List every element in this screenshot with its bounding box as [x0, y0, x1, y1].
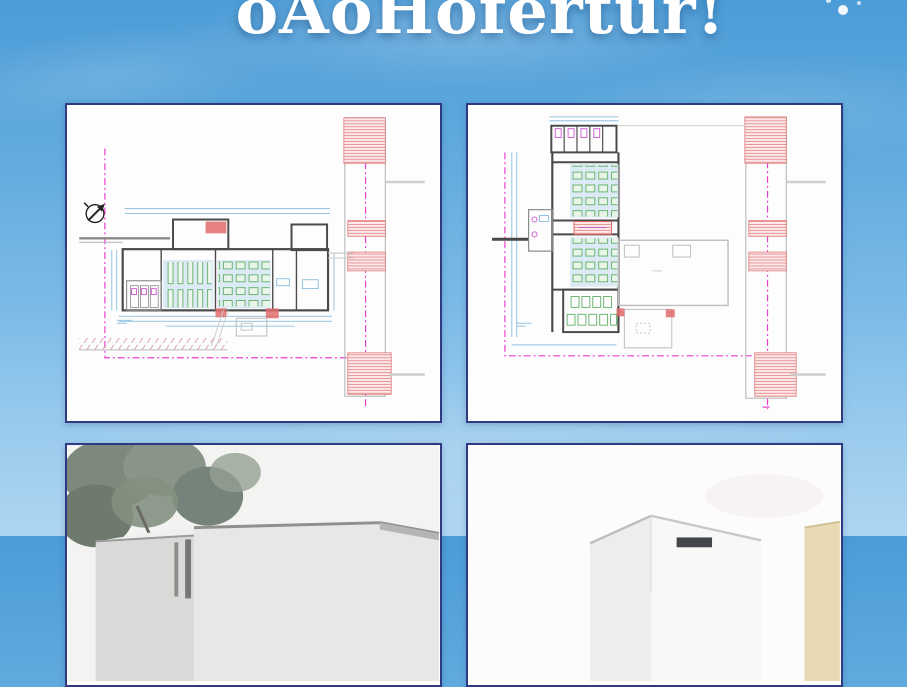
building-mass [96, 523, 439, 681]
building-render [468, 445, 841, 681]
service-rooms [529, 210, 553, 251]
stair-hatch [574, 222, 612, 235]
page-title: oAoHofertur! [235, 0, 725, 48]
site-boundary-line [505, 117, 773, 409]
toilet-block [551, 126, 616, 153]
white-speck [838, 5, 848, 15]
floor-plan-panel-right [466, 103, 843, 423]
north-arrow-icon [84, 203, 105, 223]
background-haze [705, 475, 823, 518]
office-furniture [277, 279, 318, 289]
plan-annotation [517, 323, 532, 326]
floor-plan-drawing [67, 105, 440, 417]
classroom-lower [570, 237, 618, 286]
toilet-stalls [127, 281, 162, 311]
classroom-right [217, 260, 270, 308]
parking-row [79, 338, 227, 350]
bottom-room [563, 290, 618, 332]
patio-outline [616, 308, 674, 347]
existing-building-hatch [344, 118, 425, 396]
render-panel-right [466, 443, 843, 687]
window-slit [677, 537, 712, 547]
beige-wall [804, 522, 839, 681]
white-speck [857, 1, 861, 5]
existing-footprint [618, 240, 728, 305]
floor-plan-drawing [468, 105, 841, 417]
render-panel-left [65, 443, 442, 687]
classroom-upper [570, 164, 618, 217]
floor-plan-panel-left [65, 103, 442, 423]
white-speck [826, 0, 831, 3]
building-corner [590, 516, 761, 681]
classroom-left [163, 260, 213, 308]
access-road [79, 238, 170, 242]
building-render [67, 445, 440, 681]
plan-annotation [117, 320, 133, 323]
